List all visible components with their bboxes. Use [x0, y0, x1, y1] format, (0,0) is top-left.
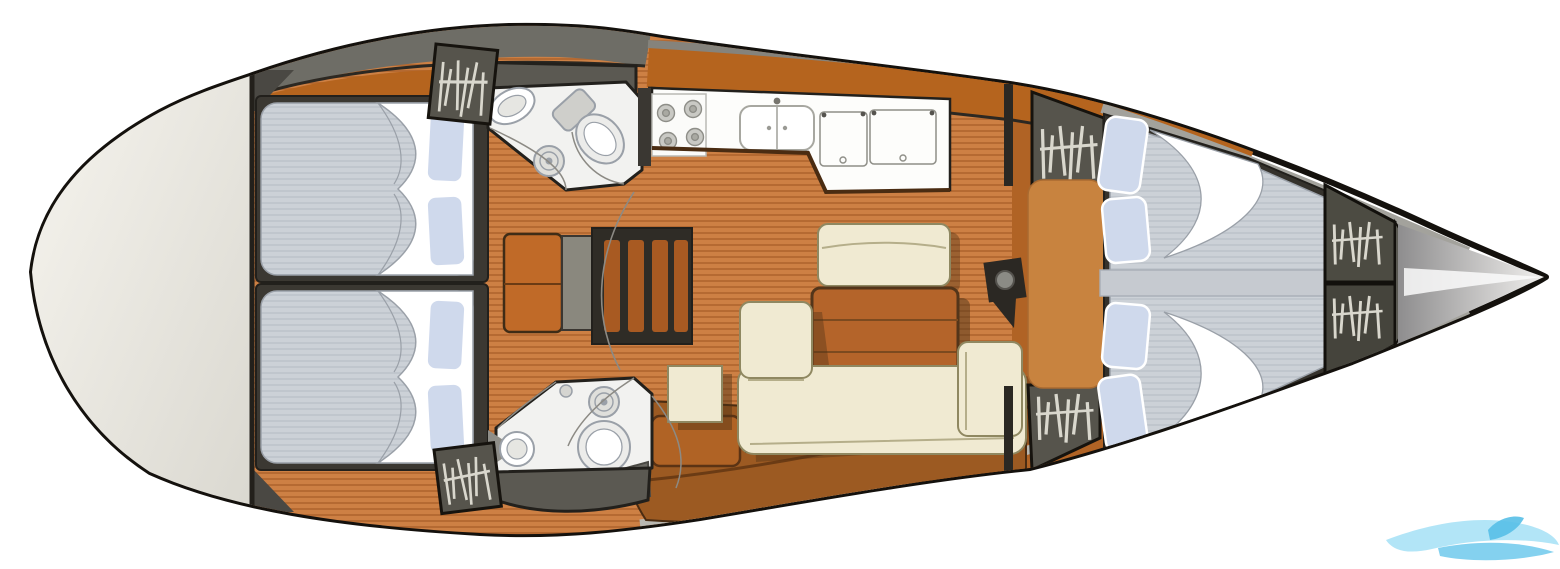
pillow — [1101, 196, 1150, 264]
fwd-bulkhead — [1004, 84, 1013, 186]
forward-cabin — [1004, 84, 1338, 474]
stove-gimbal-frame — [638, 88, 651, 166]
bow — [1325, 185, 1544, 382]
hanging-locker-port-head — [428, 44, 497, 124]
watermark-wave-logo — [1386, 517, 1559, 561]
faucet-icon — [774, 98, 781, 105]
salon-table — [812, 288, 958, 372]
aft-cabin-stbd-berth — [256, 284, 488, 470]
galley-locker-lid — [870, 110, 936, 164]
sofa-arm-left — [740, 302, 812, 378]
head-counter — [494, 468, 650, 511]
shower-head-icon — [560, 385, 572, 397]
floor-plan-canvas — [0, 0, 1560, 569]
cabin-door — [1028, 180, 1104, 388]
stern-deck — [26, 18, 252, 548]
hanging-locker-stbd-head — [434, 443, 501, 514]
pillow — [1101, 302, 1150, 370]
nav-seat — [562, 236, 592, 330]
fwd-bulkhead — [1004, 386, 1013, 474]
galley-locker-lid — [820, 112, 867, 166]
pillow — [1097, 115, 1149, 194]
pillow — [1097, 373, 1149, 452]
floor-plan-page — [0, 0, 1560, 569]
stool — [668, 366, 722, 422]
aft-cabin-port-berth — [256, 96, 488, 282]
salon-bench — [818, 224, 950, 286]
v-berth-filler-cushion — [1100, 270, 1338, 296]
